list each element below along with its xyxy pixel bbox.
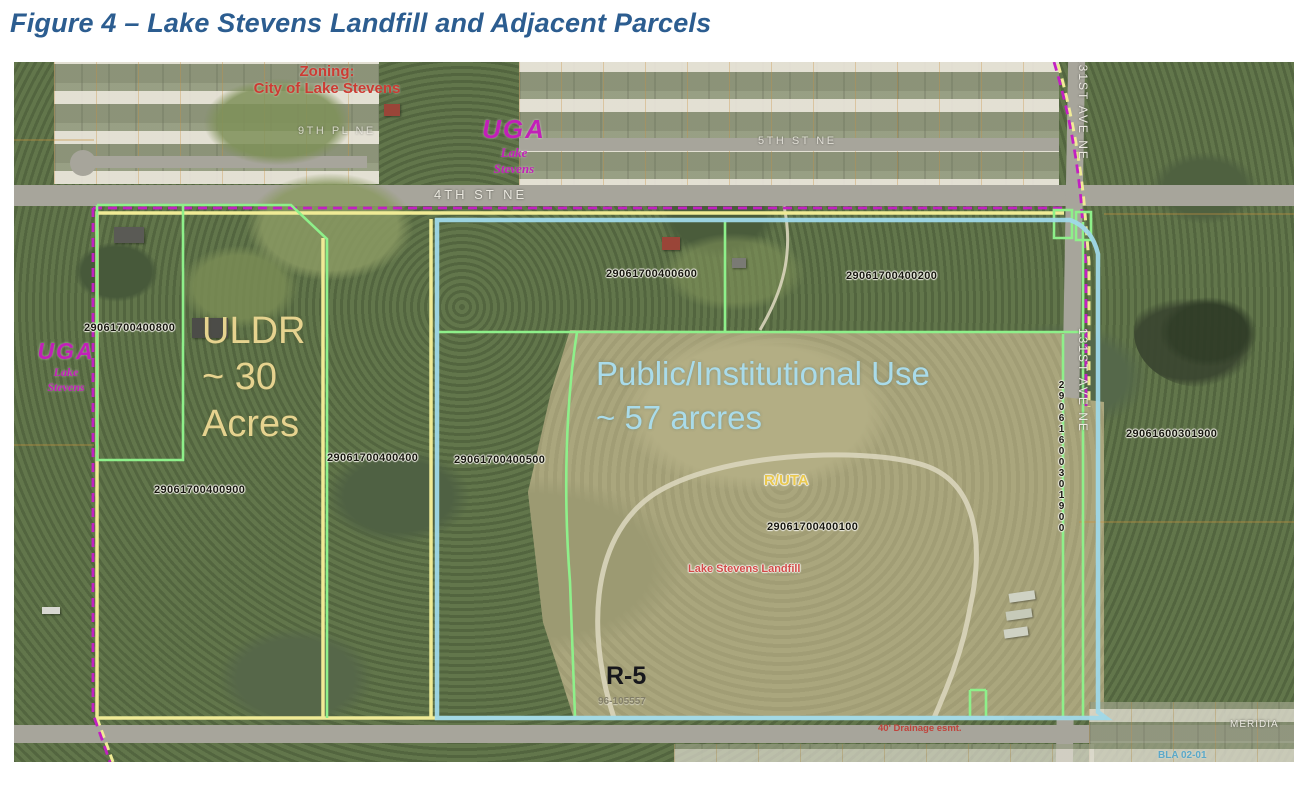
parcel-number-400600: 29061700400600	[606, 268, 697, 280]
zoning-line2: City of Lake Stevens	[252, 81, 402, 98]
street-label-131st-ave-upper: 131ST AVE NE	[1076, 62, 1090, 196]
uga-label-left: UGA Lake Stevens	[16, 338, 116, 395]
pond	[1134, 277, 1269, 387]
uga-label-top: UGA Lake Stevens	[454, 114, 574, 176]
uga-left-city2: Stevens	[16, 380, 116, 395]
uldr-line3: Acres	[202, 401, 305, 447]
zoning-line1: Zoning:	[252, 64, 402, 81]
permit-number-label: 96-105557	[598, 696, 646, 707]
street-label-131st-ave-lower: 131ST AVE NE	[1076, 328, 1090, 498]
landfill-name-label: Lake Stevens Landfill	[688, 563, 800, 575]
drainage-easement-label: 40' Drainage esmt.	[878, 723, 962, 734]
public-use-line2: ~ 57 arcres	[596, 396, 930, 440]
street-label-5th-st-ne: 5TH ST NE	[758, 135, 837, 147]
white-rv	[42, 607, 60, 614]
public-use-line1: Public/Institutional Use	[596, 352, 930, 396]
parcel-number-301900-vertical: 29061600301900	[1056, 380, 1067, 560]
zone-r5-label: R-5	[606, 662, 646, 691]
street-label-4th-st-ne: 4TH ST NE	[434, 187, 527, 202]
aerial-map: Zoning: City of Lake Stevens UGA Lake St…	[14, 62, 1294, 762]
barn	[114, 227, 144, 243]
parcel-number-400400: 29061700400400	[327, 452, 418, 464]
parcel-number-301900-horizontal: 29061600301900	[1126, 428, 1217, 440]
road-9th-cul-de-sac	[70, 150, 96, 176]
uga-left-city1: Lake	[16, 365, 116, 380]
street-label-9th-pl-ne: 9TH PL NE	[298, 125, 376, 137]
uldr-line2: ~ 30	[202, 354, 305, 400]
parcel-number-400500: 29061700400500	[454, 454, 545, 466]
shed	[732, 258, 746, 268]
parcel-number-400800: 29061700400800	[84, 322, 175, 334]
parcel-number-400900: 29061700400900	[154, 484, 245, 496]
uldr-area-annotation: ULDR ~ 30 Acres	[202, 308, 305, 447]
subdivision-top-right	[519, 62, 1059, 192]
bla-label: BLA 02-01	[1158, 750, 1207, 761]
street-label-meridian: MERIDIA	[1230, 719, 1279, 730]
houses-bottom-mid	[674, 744, 1094, 762]
zoning-label: Zoning: City of Lake Stevens	[252, 64, 402, 97]
uga-top-city1: Lake	[454, 145, 574, 161]
uga-left-name: UGA	[16, 338, 116, 365]
uga-top-name: UGA	[454, 114, 574, 145]
uga-top-city2: Stevens	[454, 161, 574, 177]
red-roof-house	[384, 104, 400, 116]
figure-title: Figure 4 – Lake Stevens Landfill and Adj…	[10, 8, 711, 39]
parcel-number-400200: 29061700400200	[846, 270, 937, 282]
ruta-label: R/UTA	[764, 472, 809, 489]
red-roof-house-2	[662, 237, 680, 250]
uldr-line1: ULDR	[202, 308, 305, 354]
public-use-annotation: Public/Institutional Use ~ 57 arcres	[596, 352, 930, 439]
parcel-number-400100: 29061700400100	[767, 521, 858, 533]
